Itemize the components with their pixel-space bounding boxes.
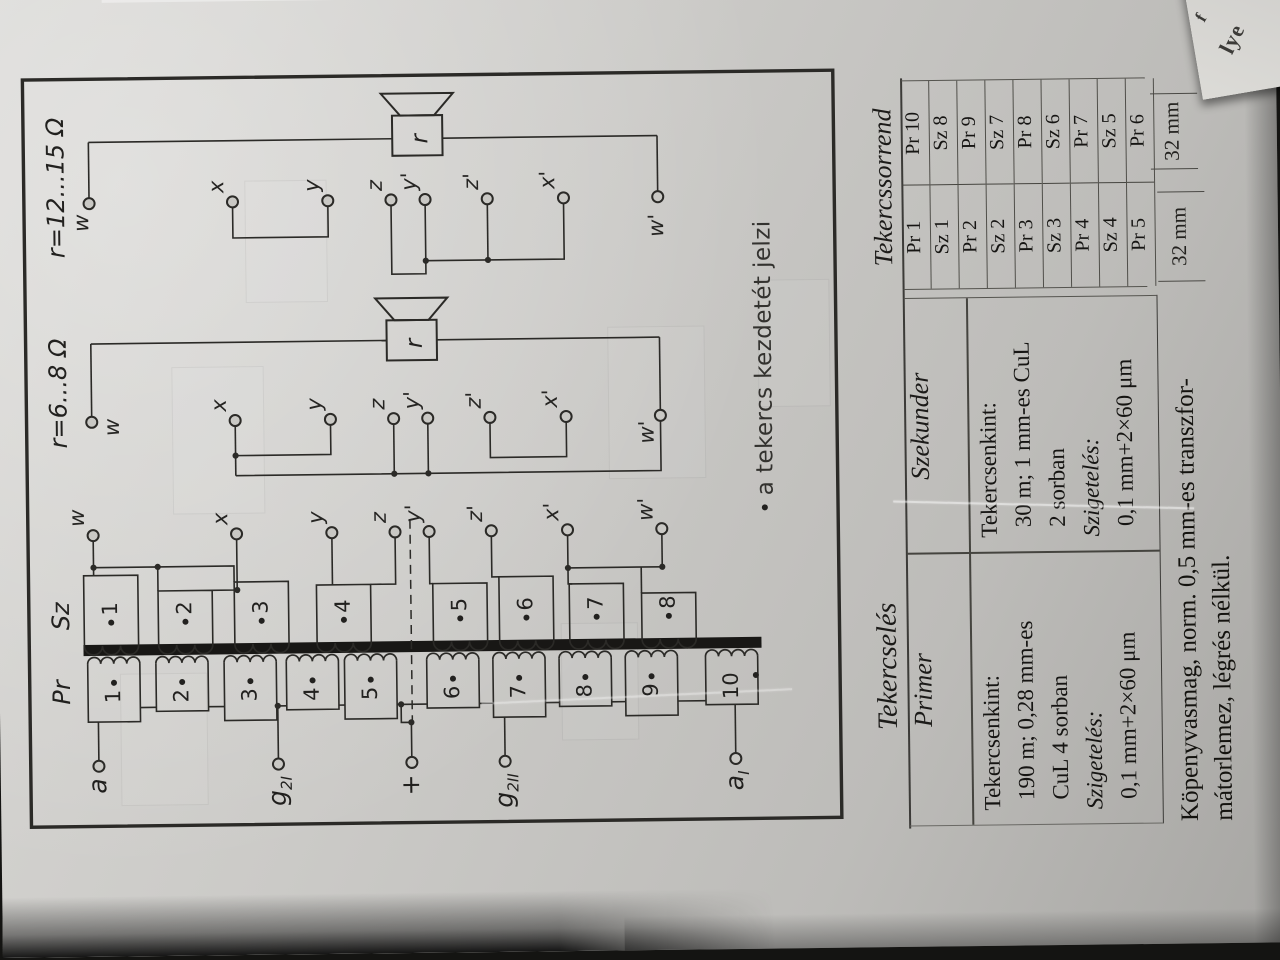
order-table-row: Pr 2Pr 9 bbox=[957, 80, 988, 288]
tap-label: z' bbox=[463, 505, 487, 522]
terminal-circle bbox=[86, 417, 97, 428]
tap-label: y' bbox=[399, 391, 423, 410]
wire bbox=[286, 654, 338, 661]
wire bbox=[88, 657, 140, 664]
tap-label: y bbox=[303, 511, 327, 524]
winding-start-dot-icon bbox=[594, 614, 600, 620]
winding-spec-line: 0,1 mm+2×60 μm bbox=[1114, 631, 1142, 799]
winding-start-dot-icon bbox=[310, 677, 316, 683]
winding-spec-line: 0,1 mm+2×60 μm bbox=[1111, 359, 1139, 527]
input-label-aI: aI bbox=[720, 770, 754, 843]
tap-label: y bbox=[299, 179, 323, 192]
junction-dot bbox=[659, 564, 665, 570]
wire bbox=[156, 656, 208, 663]
pr-winding-number: 8 bbox=[572, 674, 596, 702]
tap-label: w bbox=[65, 509, 89, 527]
winding-spec-line: 30 m; 1 mm-es CuL bbox=[1009, 341, 1037, 527]
terminal-circle bbox=[230, 415, 241, 426]
order-table-row: Sz 4Sz 5 bbox=[1098, 79, 1129, 287]
order-cell: Pr 4 bbox=[1071, 182, 1099, 287]
input-label-g2I: g2I bbox=[263, 776, 297, 849]
coil-start-note-text: a tekercs kezdetét jelzi bbox=[749, 220, 778, 495]
wire bbox=[344, 654, 396, 661]
junction-dot bbox=[485, 257, 491, 263]
input-label-main: g bbox=[263, 790, 292, 806]
wire bbox=[487, 205, 488, 260]
winding-start-dot-icon bbox=[247, 678, 253, 684]
terminal-circle bbox=[273, 758, 284, 769]
facing-page-text-fragment: lye bbox=[1214, 20, 1251, 58]
page: Pr Sz r=6...8 Ω r=12...15 Ω a g2I + g2II… bbox=[0, 0, 1280, 958]
order-cell: Pr 5 bbox=[1127, 182, 1155, 287]
winding-start-dot-icon bbox=[341, 617, 347, 623]
winding-start-dot-icon bbox=[666, 613, 672, 619]
wire bbox=[568, 567, 662, 568]
speaker-impedance-label: r bbox=[407, 134, 433, 144]
book-photo: Pr Sz r=6...8 Ω r=12...15 Ω a g2I + g2II… bbox=[0, 0, 1280, 960]
terminal-circle bbox=[322, 195, 333, 206]
winding-start-dot-icon bbox=[179, 679, 185, 685]
terminal-circle bbox=[88, 530, 99, 541]
book-gutter-shadow bbox=[624, 908, 1280, 950]
facing-page-text-fragment: f bbox=[1191, 10, 1211, 25]
input-label-main: + bbox=[396, 774, 425, 795]
winding-start-dot-icon bbox=[582, 674, 588, 680]
tap-label: x bbox=[208, 512, 232, 525]
pr-winding-number: 2 bbox=[169, 679, 193, 707]
winding-start-dot-icon bbox=[516, 675, 522, 681]
terminal-circle bbox=[730, 753, 741, 764]
terminal-circle bbox=[385, 194, 396, 205]
winding-spec-line: Szigetelés: bbox=[1078, 438, 1105, 537]
pr-winding-number: 4 bbox=[299, 677, 323, 705]
wire bbox=[224, 655, 276, 662]
order-cell: Sz 7 bbox=[985, 81, 1013, 184]
order-section-title: Tekercssorrend bbox=[867, 79, 900, 295]
wire bbox=[375, 298, 447, 321]
winding-spec-line: CuL 4 sorban bbox=[1047, 675, 1075, 800]
junction-dot bbox=[408, 719, 414, 725]
terminal-circle bbox=[419, 194, 430, 205]
sz-winding-number: 2 bbox=[172, 585, 197, 625]
wire bbox=[559, 651, 611, 658]
junction-dot bbox=[391, 471, 397, 477]
junction-dot bbox=[565, 565, 571, 571]
order-cell: Sz 8 bbox=[929, 82, 957, 185]
terminal-circle bbox=[655, 410, 666, 421]
wire bbox=[427, 653, 479, 660]
wire bbox=[657, 136, 658, 191]
wire bbox=[91, 340, 387, 344]
wire bbox=[705, 649, 757, 656]
terminal-circle bbox=[652, 191, 663, 202]
wire bbox=[278, 706, 279, 758]
terminal-circle bbox=[656, 523, 667, 534]
tap-label: w bbox=[69, 214, 93, 232]
terminal-circle bbox=[422, 413, 433, 424]
order-table-row: Pr 1Pr 10 bbox=[901, 81, 932, 289]
winding-order-table: Pr 1Pr 10Sz 1Sz 8Pr 2Pr 9Sz 2Sz 7Pr 3Pr … bbox=[901, 77, 1147, 290]
winding-start-dot-icon bbox=[457, 615, 463, 621]
wire bbox=[491, 537, 499, 577]
wire bbox=[425, 204, 564, 261]
junction-dot bbox=[398, 701, 404, 707]
input-label-main: g bbox=[489, 792, 518, 808]
core-window-dimension: 32 mm bbox=[1150, 93, 1198, 170]
wire bbox=[429, 537, 433, 583]
winding-table-header-primer: Primer bbox=[907, 554, 972, 826]
terminal-circle bbox=[562, 524, 573, 535]
terminal-circle bbox=[231, 528, 242, 539]
wire bbox=[428, 424, 429, 473]
winding-spec-line: 2 sorban bbox=[1044, 448, 1071, 527]
wire bbox=[235, 427, 236, 476]
winding-start-dot-icon bbox=[259, 618, 265, 624]
winding-start-dot-icon bbox=[111, 680, 117, 686]
wire bbox=[394, 425, 395, 474]
winding-start-dot-icon bbox=[523, 615, 529, 621]
wire bbox=[437, 337, 660, 340]
winding-start-dot-icon bbox=[753, 672, 759, 678]
junction-dot bbox=[90, 565, 96, 571]
sz-winding-number: 3 bbox=[248, 584, 273, 624]
terminal-circle bbox=[326, 527, 337, 538]
winding-start-dot-icon bbox=[108, 620, 114, 626]
input-label-main: a bbox=[720, 775, 749, 791]
speaker-impedance-label: r bbox=[402, 338, 428, 348]
order-cell: Sz 5 bbox=[1098, 80, 1126, 183]
input-label-sub: 2II bbox=[504, 773, 522, 792]
sz-winding-number: 8 bbox=[655, 579, 680, 619]
order-cell: Pr 10 bbox=[901, 82, 929, 185]
pr-winding-number: 6 bbox=[440, 676, 464, 704]
tap-label: x' bbox=[539, 503, 563, 522]
terminal-circle bbox=[406, 757, 417, 768]
tap-label: y' bbox=[401, 504, 425, 523]
wire bbox=[370, 538, 396, 584]
tap-label: w' bbox=[633, 498, 657, 521]
terminal-circle bbox=[500, 756, 511, 767]
wire bbox=[158, 566, 234, 583]
junction-dot bbox=[232, 452, 238, 458]
tap-label: w' bbox=[644, 214, 668, 237]
order-table-row: Pr 4Pr 7 bbox=[1070, 79, 1101, 287]
wire bbox=[391, 206, 426, 275]
input-label-a: a bbox=[83, 778, 117, 851]
order-cell: Pr 1 bbox=[902, 184, 930, 289]
input-label-g2II: g2II bbox=[489, 773, 523, 846]
wire bbox=[235, 425, 331, 455]
winding-start-dot-icon bbox=[182, 619, 188, 625]
wire bbox=[625, 650, 677, 657]
sz-winding-number: 4 bbox=[330, 583, 355, 623]
impedance-label-6-8: r=6...8 Ω bbox=[43, 303, 73, 484]
pr-winding-number: 7 bbox=[506, 675, 530, 703]
tap-label: x' bbox=[535, 171, 559, 190]
winding-table-header-szekunder: Szekunder bbox=[904, 298, 969, 554]
winding-start-dot-icon bbox=[450, 676, 456, 682]
winding-spec-line: Tekercsenkint: bbox=[975, 402, 1003, 538]
tap-label: z bbox=[367, 512, 391, 523]
winding-section-title: Tekercselés bbox=[871, 536, 906, 797]
winding-spec-line: Tekercsenkint: bbox=[979, 675, 1007, 811]
wire bbox=[381, 93, 453, 116]
input-label-plus: + bbox=[396, 774, 430, 847]
order-cell: Pr 9 bbox=[957, 81, 985, 184]
input-label-main: a bbox=[83, 778, 112, 794]
terminal-circle bbox=[325, 414, 336, 425]
wire bbox=[401, 704, 412, 756]
sz-winding-number: 1 bbox=[98, 585, 123, 625]
tap-label: z bbox=[363, 180, 387, 191]
tap-label: w' bbox=[634, 420, 658, 443]
terminal-circle bbox=[93, 761, 104, 772]
sz-winding-number: 5 bbox=[447, 581, 472, 621]
sz-winding-number: 6 bbox=[513, 580, 538, 620]
tap-label: y' bbox=[397, 172, 421, 191]
input-label-sub: I bbox=[735, 770, 753, 775]
terminal-circle bbox=[388, 413, 399, 424]
wire bbox=[568, 536, 573, 584]
order-cell: Pr 7 bbox=[1070, 80, 1098, 183]
terminal-circle bbox=[486, 525, 497, 536]
pr-winding-number: 3 bbox=[237, 678, 261, 706]
order-cell: Sz 3 bbox=[1043, 183, 1071, 288]
order-cell: Pr 2 bbox=[959, 184, 987, 289]
order-cell: Sz 4 bbox=[1099, 182, 1127, 287]
wire bbox=[442, 136, 657, 139]
junction-dot bbox=[155, 564, 161, 570]
winding-start-dot-icon bbox=[649, 673, 655, 679]
terminal-circle bbox=[227, 196, 238, 207]
junction-dot bbox=[275, 703, 281, 709]
order-cell: Sz 6 bbox=[1041, 80, 1069, 183]
pr-winding-number: 5 bbox=[358, 677, 382, 705]
tap-label: z' bbox=[462, 392, 486, 409]
terminal-circle bbox=[83, 198, 94, 209]
order-cell: Sz 2 bbox=[987, 183, 1015, 288]
coil-start-dot-icon bbox=[761, 504, 767, 510]
wire bbox=[410, 520, 412, 725]
pr-winding-number: 9 bbox=[638, 673, 662, 701]
order-table-row: Pr 3Pr 8 bbox=[1013, 80, 1044, 288]
tap-label: y bbox=[302, 398, 326, 411]
wire bbox=[735, 704, 736, 752]
impedance-label-12-15: r=12...15 Ω bbox=[41, 98, 71, 279]
pr-winding-number: 1 bbox=[101, 680, 125, 708]
winding-spec-line: Szigetelés: bbox=[1081, 710, 1108, 809]
wire bbox=[235, 421, 661, 475]
wire bbox=[22, 70, 841, 827]
terminal-circle bbox=[424, 526, 435, 537]
wire bbox=[332, 539, 333, 585]
wire bbox=[88, 139, 392, 143]
wire bbox=[493, 652, 545, 659]
wire bbox=[490, 422, 567, 457]
terminal-circle bbox=[389, 526, 400, 537]
winding-spec-line: 190 m; 0,28 mm-es bbox=[1012, 620, 1040, 800]
tap-label: x bbox=[207, 399, 231, 412]
terminal-circle bbox=[484, 412, 495, 423]
tap-label: z' bbox=[459, 173, 483, 190]
wire bbox=[88, 142, 89, 197]
coil-start-note: a tekercs kezdetét jelzi bbox=[749, 164, 779, 510]
order-cell: Sz 1 bbox=[930, 184, 958, 289]
winding-start-dot-icon bbox=[368, 677, 374, 683]
primary-column-label: Pr bbox=[48, 674, 77, 710]
pr-winding-number: 10 bbox=[719, 672, 767, 701]
order-cell: Pr 8 bbox=[1013, 81, 1041, 184]
order-table-row: Sz 1Sz 8 bbox=[929, 81, 960, 289]
tap-label: x' bbox=[538, 389, 562, 408]
order-cell: Pr 3 bbox=[1015, 183, 1043, 288]
wire bbox=[233, 207, 329, 238]
input-label-sub: 2I bbox=[278, 776, 296, 790]
secondary-column-label: Sz bbox=[47, 598, 76, 634]
junction-dot bbox=[425, 470, 431, 476]
junction-dot bbox=[423, 258, 429, 264]
terminal-circle bbox=[561, 411, 572, 422]
order-table-row: Sz 3Sz 6 bbox=[1041, 79, 1072, 287]
tap-label: w bbox=[100, 419, 124, 437]
sz-winding-number: 7 bbox=[583, 579, 608, 619]
terminal-circle bbox=[482, 193, 493, 204]
wire bbox=[659, 337, 660, 409]
winding-table: Primer Szekunder Tekercsenkint:190 m; 0,… bbox=[904, 295, 1164, 827]
wire bbox=[91, 344, 92, 416]
terminal-circle bbox=[558, 192, 569, 203]
tap-label: z bbox=[365, 399, 389, 410]
tap-label: x bbox=[204, 180, 228, 193]
order-table-row: Sz 2Sz 7 bbox=[985, 80, 1016, 288]
